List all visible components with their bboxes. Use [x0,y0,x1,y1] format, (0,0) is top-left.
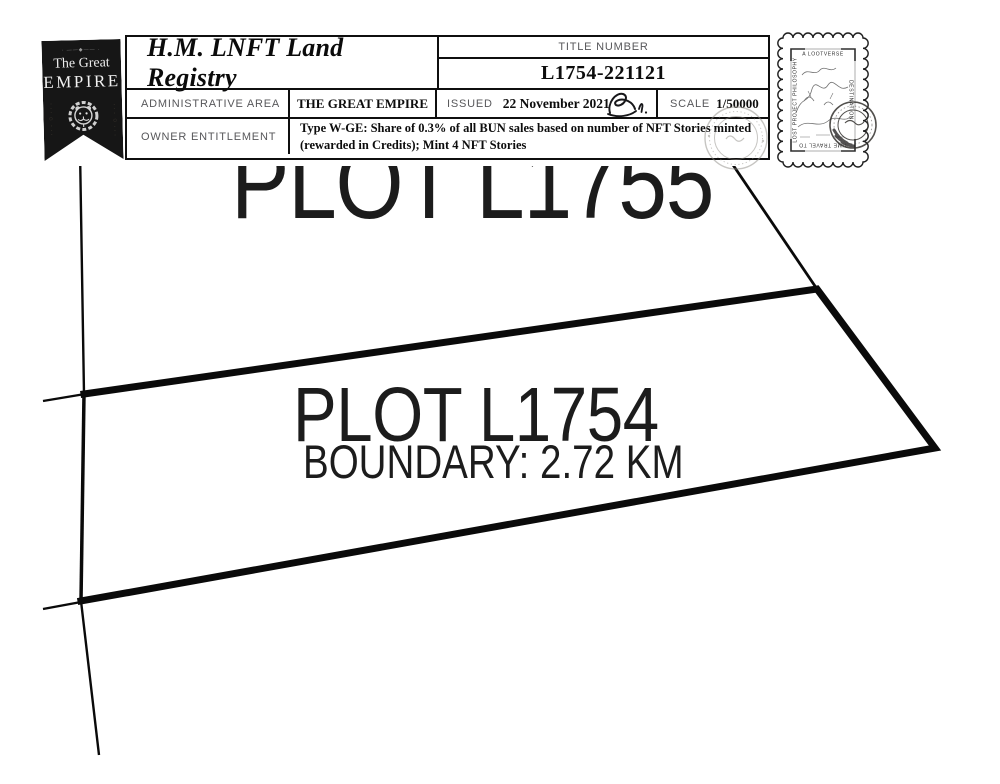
owner-entitlement-text: Type W-GE: Share of 0.3% of all BUN sale… [300,120,751,153]
title-number-value: L1754-221121 [541,62,666,85]
title-number-label: TITLE NUMBER [558,41,648,53]
adjacent-plot-line [731,162,817,289]
title-number-label-row: TITLE NUMBER [439,37,768,59]
table-row-title: H.M. LNFT Land Registry TITLE NUMBER L17… [127,37,768,88]
ribbon-ornament: · ——◆—— · [42,46,121,54]
certificate-header: · ——◆—— · The Great EMPIRE ···○··· ···○·… [0,0,1000,166]
boundary-tick-upper [43,394,85,401]
empire-ribbon-badge: · ——◆—— · The Great EMPIRE ···○··· ···○·… [41,39,123,161]
postmark-ink-blob [834,130,854,146]
admin-area-value: THE GREAT EMPIRE [297,96,428,112]
seal-star-right [762,140,764,142]
admin-area-value-cell: THE GREAT EMPIRE [288,90,435,117]
plot-boundary-length-label: BOUNDARY: 2.72 KM [303,438,684,485]
registry-title: H.M. LNFT Land Registry [147,33,437,93]
postmark-inner-ring [838,110,868,140]
stamp-top-label: A LOOTVERSE [802,52,844,58]
seal-star-left [708,135,710,137]
title-number-value-row: L1754-221121 [439,59,768,88]
table-row-admin: ADMINISTRATIVE AREA THE GREAT EMPIRE ISS… [127,88,768,117]
registry-seal-icon [701,103,771,173]
signature-loop [609,94,635,113]
signature-tail [608,104,643,116]
ribbon-side-mark: ···○··· [111,101,119,136]
boundary-tick-lower [43,602,81,609]
issued-date: 22 November 2021 [503,96,610,112]
owner-entitlement-label-cell: OWNER ENTITLEMENT [127,119,288,154]
signature-icon [604,88,652,120]
table-row-owner: OWNER ENTITLEMENT Type W-GE: Share of 0.… [127,117,768,154]
issued-label: ISSUED [447,98,493,110]
postmark-icon [826,98,882,154]
lion-face [74,107,91,124]
postmark-outer-ring [830,102,876,148]
badge-title-large: EMPIRE [42,71,121,93]
seal-text-ring [710,112,763,165]
ribbon-side-mark: ···○··· [47,103,55,138]
postmark-center-mark [845,121,864,125]
certificate-table: H.M. LNFT Land Registry TITLE NUMBER L17… [125,35,770,160]
admin-area-label: ADMINISTRATIVE AREA [141,98,280,110]
plot-boundary-left [81,394,84,601]
admin-area-label-cell: ADMINISTRATIVE AREA [127,90,288,117]
owner-entitlement-label: OWNER ENTITLEMENT [141,131,276,143]
seal-center-mark [726,136,744,141]
owner-entitlement-value-cell: Type W-GE: Share of 0.3% of all BUN sale… [288,119,768,154]
issued-cell: ISSUED 22 November 2021 [435,90,656,117]
title-number-cell: TITLE NUMBER L1754-221121 [437,37,768,88]
stamp-left-label: LOST PROJECT PHILOSOPHY [793,57,799,142]
registry-title-cell: H.M. LNFT Land Registry [127,37,437,88]
land-registry-certificate: PLOT L1755 PLOT L1754 BOUNDARY: 2.72 KM … [0,0,1000,784]
lion-crest-icon [62,95,103,138]
signature-dot [645,111,647,113]
seal-inner-ring [715,117,758,160]
